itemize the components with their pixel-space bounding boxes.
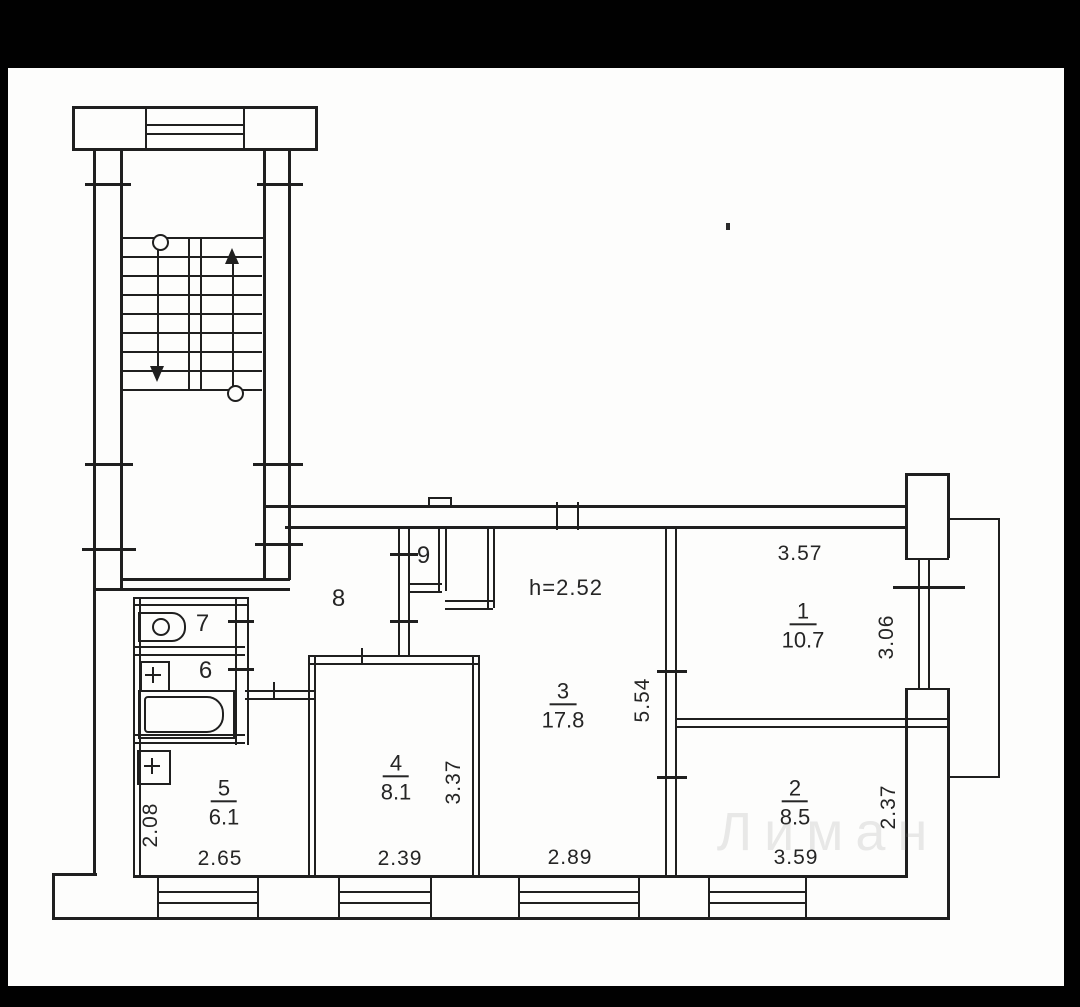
stair-direction-arrow: [225, 248, 239, 264]
wall-segment: [947, 776, 1000, 778]
wall-segment: [133, 742, 245, 744]
wall-segment: [905, 473, 908, 560]
dimension-label: 2.39: [378, 847, 423, 871]
wall-segment: [228, 620, 254, 623]
wall-segment: [408, 591, 442, 593]
dimension-label: 3.06: [875, 615, 899, 660]
wall-segment: [72, 148, 318, 151]
stair-tread: [122, 294, 262, 296]
wall-segment: [918, 558, 920, 690]
dimension-label: h=2.52: [529, 575, 603, 601]
stair-tread: [122, 332, 262, 334]
wall-segment: [430, 877, 432, 919]
wall-segment: [947, 473, 950, 558]
wall-segment: [273, 682, 275, 700]
wall-segment: [133, 646, 245, 648]
wall-segment: [72, 106, 318, 109]
wall-segment: [285, 526, 907, 529]
room-number: 4: [383, 751, 409, 777]
stair-tread: [122, 256, 262, 258]
wall-segment: [665, 528, 667, 877]
wall-segment: [428, 497, 452, 499]
wall-segment: [487, 528, 489, 608]
plus-mark: [151, 758, 153, 774]
dimension-label: 3.37: [442, 760, 466, 805]
wall-segment: [85, 183, 131, 186]
wall-segment: [145, 124, 243, 126]
stair-start-marker: [152, 234, 169, 251]
wall-segment: [805, 877, 807, 919]
wall-segment: [445, 600, 493, 602]
wall-segment: [390, 553, 418, 556]
wall-segment: [708, 902, 805, 904]
wall-segment: [390, 620, 418, 623]
vent-shaft: [137, 750, 171, 785]
room-area: 8.1: [381, 777, 412, 804]
wall-segment: [52, 873, 97, 876]
room-number: 1: [790, 599, 816, 625]
wall-segment: [928, 558, 930, 690]
wall-segment: [145, 133, 243, 135]
wall-segment: [145, 106, 147, 148]
room-label: 110.7: [782, 599, 825, 652]
room-label: 317.8: [542, 679, 585, 732]
watermark-text: Лиман: [717, 801, 940, 863]
wall-segment: [518, 902, 638, 904]
stair-direction-arrow: [150, 366, 164, 382]
wall-segment: [235, 597, 237, 745]
stair-start-marker: [227, 385, 244, 402]
wall-segment: [157, 877, 159, 919]
wall-segment: [245, 698, 315, 700]
wall-segment: [408, 583, 442, 585]
dimension-label: 2.89: [548, 846, 593, 870]
wall-segment: [408, 526, 410, 657]
wall-segment: [52, 917, 949, 920]
wall-segment: [157, 902, 257, 904]
wall-segment: [52, 873, 55, 920]
wall-segment: [257, 877, 259, 919]
wall-segment: [450, 497, 452, 507]
wall-segment: [232, 262, 234, 386]
wall-segment: [314, 655, 316, 877]
wall-segment: [518, 877, 520, 919]
wall-segment: [82, 548, 136, 551]
wall-segment: [133, 597, 249, 599]
wall-segment: [247, 597, 249, 745]
scanned-floorplan-image: h=2.523.572.652.392.893.595.543.372.083.…: [0, 0, 1080, 1007]
room-area: 17.8: [542, 705, 585, 732]
dimension-label: 2.08: [139, 803, 163, 848]
dimension-label: 8: [332, 585, 346, 613]
scan-speck: [726, 223, 730, 230]
wall-segment: [361, 648, 363, 665]
wall-segment: [133, 604, 249, 606]
room-area: 6.1: [209, 802, 240, 829]
wall-segment: [120, 237, 263, 239]
wall-segment: [657, 670, 687, 673]
wall-segment: [133, 875, 907, 878]
wall-segment: [905, 688, 949, 690]
wall-segment: [708, 891, 805, 893]
wall-segment: [263, 148, 266, 580]
wall-segment: [947, 688, 950, 920]
wall-segment: [947, 518, 1000, 520]
bathtub: [144, 696, 224, 733]
wall-segment: [133, 597, 135, 878]
wall-segment: [905, 473, 950, 476]
wall-segment: [120, 148, 123, 590]
wall-segment: [675, 528, 677, 877]
wall-segment: [438, 528, 440, 591]
wall-segment: [998, 518, 1000, 778]
wall-segment: [133, 654, 245, 656]
wall-segment: [445, 608, 493, 610]
dimension-label: 5.54: [631, 678, 655, 723]
wall-segment: [638, 877, 640, 919]
dimension-label: 6: [199, 657, 213, 685]
wall-segment: [308, 663, 480, 665]
wall-segment: [445, 528, 447, 591]
wall-segment: [398, 526, 400, 657]
plus-mark: [152, 667, 154, 683]
wall-segment: [472, 655, 474, 877]
wall-segment: [657, 776, 687, 779]
wall-segment: [428, 497, 430, 507]
wall-segment: [338, 891, 430, 893]
wall-segment: [263, 505, 908, 508]
dimension-label: 2.65: [198, 847, 243, 871]
room-area: 10.7: [782, 625, 825, 652]
room-number: 2: [782, 776, 808, 802]
dimension-label: 7: [196, 610, 210, 638]
wall-segment: [518, 891, 638, 893]
wall-segment: [577, 502, 579, 530]
wall-segment: [308, 655, 310, 877]
room-label: 56.1: [209, 776, 240, 829]
wall-segment: [493, 528, 495, 608]
dimension-label: 3.57: [778, 542, 823, 566]
stair-tread: [122, 275, 262, 277]
wall-segment: [478, 655, 480, 877]
wall-segment: [228, 668, 254, 671]
wall-segment: [245, 690, 315, 692]
wall-segment: [157, 891, 257, 893]
wall-segment: [338, 877, 340, 919]
stair-tread: [122, 351, 262, 353]
wall-segment: [243, 106, 245, 148]
wall-segment: [315, 106, 318, 151]
wall-segment: [157, 246, 159, 366]
room-label: 48.1: [381, 751, 412, 804]
wall-segment: [72, 106, 75, 151]
wall-segment: [308, 655, 480, 657]
room-number: 3: [550, 679, 576, 705]
room-number: 5: [211, 776, 237, 802]
stair-tread: [122, 313, 262, 315]
dimension-label: 9: [417, 542, 431, 570]
wall-segment: [93, 148, 96, 875]
wall-segment: [905, 558, 949, 560]
wall-segment: [338, 902, 430, 904]
stair-tread: [122, 370, 262, 372]
wall-segment: [708, 877, 710, 919]
wall-segment: [288, 148, 291, 580]
sink-fixture: [140, 661, 170, 692]
toilet-bowl-circle: [152, 618, 170, 636]
wall-segment: [556, 502, 558, 530]
wall-segment: [253, 463, 303, 466]
